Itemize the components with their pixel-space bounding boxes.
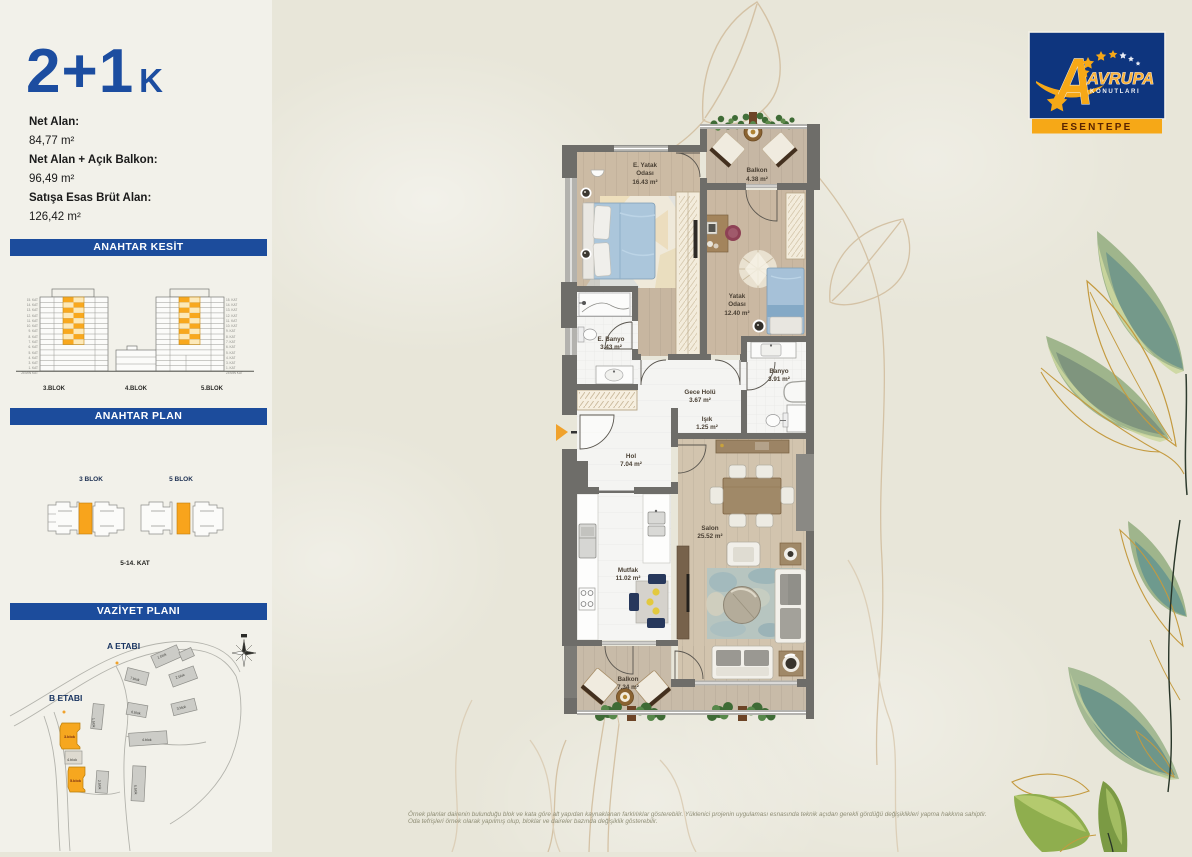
svg-text:4. KAT: 4. KAT	[28, 356, 38, 360]
svg-text:Odası: Odası	[636, 170, 654, 177]
svg-text:11.02 m²: 11.02 m²	[616, 575, 641, 582]
svg-text:14. KAT: 14. KAT	[27, 303, 38, 307]
svg-text:AVRUPA: AVRUPA	[1086, 70, 1154, 88]
svg-text:5.BLOK: 5.BLOK	[201, 386, 224, 392]
svg-text:Balkon: Balkon	[618, 676, 639, 683]
svg-text:3. KAT: 3. KAT	[28, 361, 38, 365]
svg-text:14. KAT: 14. KAT	[226, 303, 237, 307]
svg-text:1.blok: 1.blok	[91, 718, 96, 728]
svg-text:4.38 m²: 4.38 m²	[746, 176, 768, 183]
svg-text:Salon: Salon	[701, 525, 718, 532]
svg-text:5. KAT: 5. KAT	[226, 351, 236, 355]
svg-text:5.blok: 5.blok	[133, 785, 138, 795]
svg-text:E. Banyo: E. Banyo	[598, 336, 625, 343]
svg-text:6. KAT: 6. KAT	[28, 345, 38, 349]
svg-text:13. KAT: 13. KAT	[226, 308, 237, 312]
svg-text:Balkon: Balkon	[747, 167, 768, 174]
svg-text:7.34 m²: 7.34 m²	[617, 684, 639, 691]
svg-text:9. KAT: 9. KAT	[226, 329, 236, 333]
svg-text:5 BLOK: 5 BLOK	[169, 476, 193, 483]
svg-text:Işık: Işık	[702, 416, 713, 423]
svg-text:4. KAT: 4. KAT	[226, 356, 236, 360]
svg-text:3.43 m²: 3.43 m²	[600, 344, 622, 351]
svg-text:3 BLOK: 3 BLOK	[79, 476, 103, 483]
svg-text:15. KAT: 15. KAT	[27, 298, 38, 302]
svg-text:KONUTLARI: KONUTLARI	[1090, 88, 1140, 95]
svg-text:8. KAT: 8. KAT	[226, 335, 236, 339]
svg-text:Gece Holü: Gece Holü	[684, 389, 715, 396]
svg-text:11. KAT: 11. KAT	[27, 319, 38, 323]
svg-text:3. KAT: 3. KAT	[226, 361, 236, 365]
svg-text:3.BLOK: 3.BLOK	[43, 386, 66, 392]
svg-text:Banyo: Banyo	[769, 368, 788, 375]
svg-text:5.blok: 5.blok	[70, 779, 82, 783]
svg-text:4.blok: 4.blok	[142, 738, 152, 742]
svg-text:15. KAT: 15. KAT	[226, 298, 237, 302]
svg-text:3.91 m²: 3.91 m²	[768, 376, 790, 383]
svg-text:16.43 m²: 16.43 m²	[632, 179, 657, 186]
svg-text:13. KAT: 13. KAT	[27, 308, 38, 312]
svg-text:10. KAT: 10. KAT	[27, 324, 38, 328]
svg-text:1. KAT: 1. KAT	[226, 366, 236, 370]
svg-text:25.52 m²: 25.52 m²	[697, 533, 722, 540]
svg-text:ESENTEPE: ESENTEPE	[1062, 122, 1133, 133]
svg-text:4.blok: 4.blok	[67, 758, 77, 762]
svg-text:12.40 m²: 12.40 m²	[724, 310, 749, 317]
svg-text:4.BLOK: 4.BLOK	[125, 386, 148, 392]
svg-text:12. KAT: 12. KAT	[226, 314, 237, 318]
svg-text:8. KAT: 8. KAT	[28, 335, 38, 339]
svg-text:7. KAT: 7. KAT	[226, 340, 236, 344]
svg-text:2.blok: 2.blok	[97, 780, 102, 790]
svg-text:Hol: Hol	[626, 453, 636, 460]
svg-text:1. KAT: 1. KAT	[28, 366, 38, 370]
svg-text:Yatak: Yatak	[729, 293, 746, 300]
svg-text:B ETABI: B ETABI	[49, 693, 82, 703]
svg-text:Mutfak: Mutfak	[618, 567, 639, 574]
svg-text:3.blok: 3.blok	[64, 735, 76, 739]
svg-text:9. KAT: 9. KAT	[28, 329, 38, 333]
svg-text:Odası: Odası	[728, 301, 746, 308]
svg-text:5-14. KAT: 5-14. KAT	[120, 560, 150, 567]
svg-text:7. KAT: 7. KAT	[28, 340, 38, 344]
svg-text:7.04 m²: 7.04 m²	[620, 461, 642, 468]
svg-text:E. Yatak: E. Yatak	[633, 162, 658, 169]
svg-text:11. KAT: 11. KAT	[226, 319, 237, 323]
svg-text:A ETABI: A ETABI	[107, 641, 140, 651]
svg-text:5. KAT: 5. KAT	[28, 351, 38, 355]
svg-text:6. KAT: 6. KAT	[226, 345, 236, 349]
svg-text:10. KAT: 10. KAT	[226, 324, 237, 328]
svg-text:1.25 m²: 1.25 m²	[696, 424, 718, 431]
svg-text:ZEMİN KAT: ZEMİN KAT	[226, 370, 243, 375]
svg-text:ZEMİN KAT: ZEMİN KAT	[21, 370, 38, 375]
svg-text:12. KAT: 12. KAT	[27, 314, 38, 318]
svg-text:3.67 m²: 3.67 m²	[689, 397, 711, 404]
